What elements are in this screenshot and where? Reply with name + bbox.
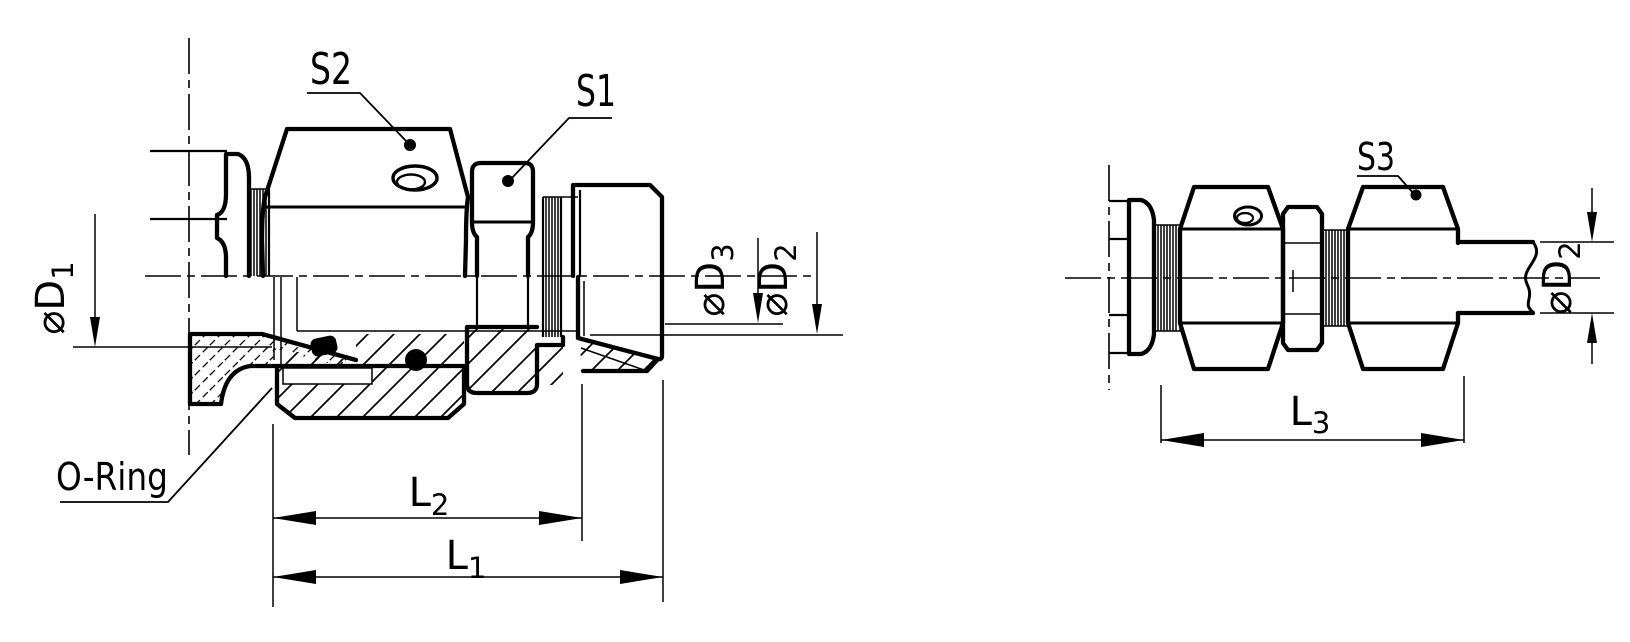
leader-dot-s3 — [1411, 190, 1422, 201]
dim-l3: L3 — [1161, 376, 1464, 447]
leader-dot-s1 — [502, 175, 514, 187]
drawing-canvas: ⌀D1 ⌀D3 ⌀D2 L2 — [0, 0, 1630, 642]
callout-label-s1: S1 — [576, 66, 616, 117]
right-dimensions: ⌀D2 L3 — [1161, 188, 1614, 447]
left-callouts: S2 S1 O-Ring — [56, 44, 616, 502]
left-view: ⌀D1 ⌀D3 ⌀D2 L2 — [28, 38, 843, 607]
dim-phi-d1: ⌀D1 — [28, 214, 272, 347]
dim-label-phi-d2-left: ⌀D2 — [751, 243, 803, 316]
dim-label-l1: L1 — [446, 533, 487, 585]
callout-s2: S2 — [307, 44, 416, 151]
fitting-outline-upper — [217, 129, 662, 276]
wrench-flat-oval-inner — [397, 175, 425, 190]
callout-s1: S1 — [502, 66, 616, 187]
dim-phi-d2-right: ⌀D2 — [1535, 188, 1614, 364]
dim-label-phi-d2-right: ⌀D2 — [1535, 241, 1587, 314]
callout-s3: S3 — [1357, 135, 1422, 201]
tube-bore-void — [283, 368, 372, 384]
thread-serrations-front — [546, 197, 558, 337]
leader-dot-s2 — [404, 139, 416, 151]
dim-label-l2: L2 — [409, 470, 450, 522]
callout-label-s2: S2 — [310, 44, 352, 95]
male-stud-upper — [573, 185, 662, 276]
callout-label-o-ring: O-Ring — [56, 455, 168, 499]
dim-label-l3: L3 — [1290, 389, 1331, 440]
hex-nut-s2 — [262, 129, 468, 276]
rear-collar — [217, 154, 249, 276]
callout-o-ring: O-Ring — [56, 388, 272, 502]
dim-label-phi-d3: ⌀D3 — [688, 243, 740, 316]
drawing-sheet: ⌀D1 ⌀D3 ⌀D2 L2 — [0, 0, 1630, 642]
wrench-flat-oval-right-inner — [1237, 213, 1253, 223]
dim-label-phi-d1: ⌀D1 — [28, 261, 80, 334]
right-view: ⌀D2 L3 S3 — [1065, 135, 1614, 447]
port-bore-edges-right — [1109, 201, 1128, 353]
callout-label-s3: S3 — [1357, 135, 1395, 179]
rear-collar-right — [1129, 200, 1154, 354]
